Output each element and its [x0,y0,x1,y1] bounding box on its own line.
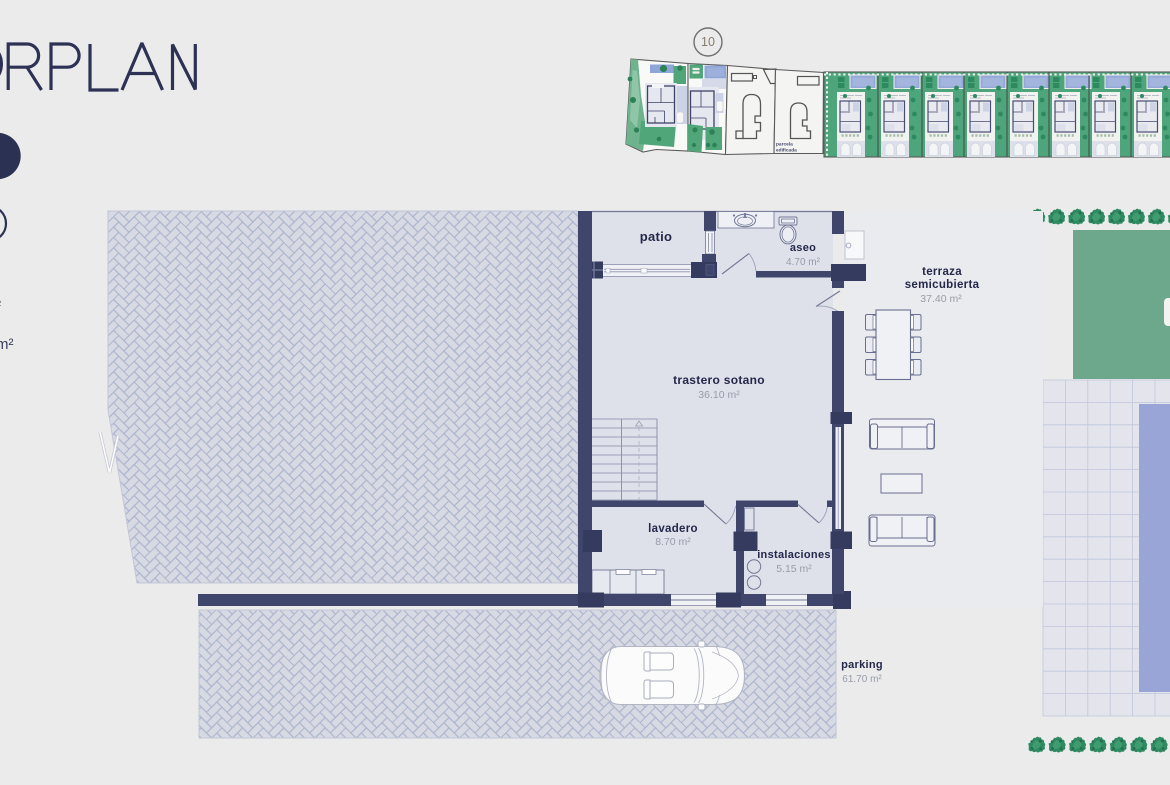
svg-text:parking: parking [841,659,883,671]
svg-text:5.15 m²: 5.15 m² [776,563,812,575]
svg-text:m²: m² [0,336,14,353]
svg-text:lavadero: lavadero [648,523,698,535]
svg-text:²: ² [0,298,1,312]
svg-text:trastero sotano: trastero sotano [673,373,765,387]
svg-text:edificada: edificada [776,148,797,154]
svg-text:4.70 m²: 4.70 m² [786,257,821,268]
svg-text:terraza: terraza [922,266,962,278]
svg-text:37.40 m²: 37.40 m² [920,293,962,305]
svg-text:semicubierta: semicubierta [905,279,980,291]
svg-text:36.10 m²: 36.10 m² [698,389,740,401]
svg-text:instalaciones: instalaciones [757,549,831,561]
svg-text:8.70 m²: 8.70 m² [655,536,691,548]
svg-text:parcela: parcela [776,142,793,148]
svg-text:patio: patio [640,229,673,244]
svg-text:10: 10 [701,35,715,49]
svg-text:aseo: aseo [790,242,816,254]
svg-text:61.70 m²: 61.70 m² [842,674,882,685]
